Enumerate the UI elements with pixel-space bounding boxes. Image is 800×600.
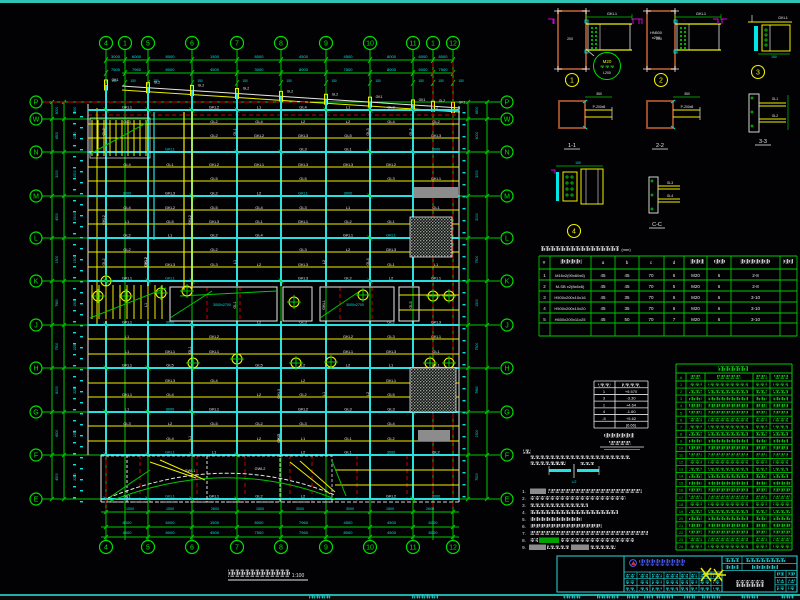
svg-text:GK1: GK1: [459, 101, 466, 105]
svg-text:W: W: [504, 117, 511, 124]
svg-text:GL1: GL1: [387, 219, 395, 224]
svg-text:L2: L2: [168, 421, 173, 426]
svg-text:GL1: GL1: [387, 262, 395, 267]
svg-text:2250: 2250: [73, 430, 77, 438]
svg-text:3000: 3000: [346, 507, 354, 511]
svg-text:6: 6: [190, 545, 194, 552]
svg-text:6000: 6000: [429, 520, 439, 525]
svg-text:4500: 4500: [344, 520, 354, 525]
svg-text:GL4: GL4: [387, 119, 395, 124]
svg-text:L200: L200: [603, 71, 611, 75]
svg-text:GL2: GL2: [332, 92, 339, 96]
svg-text:3000: 3000: [255, 67, 265, 72]
svg-text:GL2: GL2: [287, 89, 294, 93]
svg-text:GL1: GL1: [432, 205, 440, 210]
svg-text:GKL2: GKL2: [144, 257, 148, 267]
svg-text:GL1: GL1: [233, 301, 237, 308]
svg-text:GL2: GL2: [772, 114, 779, 118]
svg-text:4500: 4500: [210, 67, 220, 72]
svg-text:8000: 8000: [344, 530, 354, 535]
svg-text:18: 18: [679, 503, 683, 507]
svg-text:8000: 8000: [387, 54, 397, 59]
svg-text:20: 20: [679, 517, 683, 521]
svg-text:GK1: GK1: [376, 95, 383, 99]
svg-text:P-200x8: P-200x8: [593, 105, 606, 109]
svg-text:1: 1: [123, 41, 127, 48]
svg-text:2-8: 2-8: [752, 284, 759, 289]
svg-text:L2: L2: [346, 247, 351, 252]
svg-text:GL4: GL4: [255, 205, 263, 210]
svg-text:7500: 7500: [475, 343, 479, 351]
svg-text:GL3: GL3: [387, 105, 395, 110]
svg-text:M20: M20: [691, 295, 700, 300]
svg-text:7960: 7960: [475, 386, 479, 394]
svg-text:4500: 4500: [55, 213, 59, 221]
svg-text:3000: 3000: [432, 148, 440, 152]
svg-text:4500: 4500: [387, 520, 397, 525]
svg-text:150: 150: [575, 161, 581, 165]
svg-text:(mm): (mm): [621, 247, 631, 252]
svg-text:7: 7: [235, 41, 239, 48]
svg-text:+4.64: +4.64: [626, 402, 637, 407]
svg-text:GKL3: GKL3: [165, 191, 176, 196]
svg-text:GL4: GL4: [166, 436, 174, 441]
svg-text:150: 150: [130, 79, 136, 83]
svg-text:8: 8: [279, 545, 283, 552]
svg-text:GKL1: GKL1: [165, 495, 175, 499]
svg-text:GL2: GL2: [123, 247, 131, 252]
svg-text:GL3: GL3: [210, 262, 218, 267]
svg-text:GL4: GL4: [387, 421, 395, 426]
svg-text:L2: L2: [346, 363, 351, 368]
svg-text:L/2: L/2: [572, 480, 577, 484]
svg-text:4: 4: [104, 545, 108, 552]
svg-text:P: P: [34, 100, 39, 107]
svg-text:16: 16: [679, 489, 683, 493]
svg-text:22: 22: [679, 531, 683, 535]
svg-text:-1.60: -1.60: [626, 409, 636, 414]
svg-text:6000: 6000: [132, 54, 142, 59]
svg-text:5: 5: [680, 411, 682, 415]
svg-text:1500: 1500: [73, 213, 77, 221]
svg-text:GL4: GL4: [255, 233, 263, 238]
svg-text:4500: 4500: [344, 54, 354, 59]
svg-text:GL2: GL2: [154, 81, 161, 85]
svg-text:GL2: GL2: [243, 86, 250, 90]
svg-text:GL2: GL2: [277, 434, 281, 441]
svg-text:J: J: [34, 323, 38, 330]
svg-text:4500: 4500: [123, 530, 133, 535]
svg-text:L1: L1: [125, 349, 130, 354]
svg-text:M20: M20: [603, 59, 612, 64]
svg-text:9: 9: [680, 439, 682, 443]
svg-text:GL3: GL3: [387, 176, 395, 181]
svg-text:200: 200: [567, 37, 573, 41]
svg-text:GKL1: GKL1: [122, 320, 133, 325]
svg-text:M16x2(90x60x6): M16x2(90x60x6): [555, 273, 585, 278]
svg-text:GKL1: GKL1: [386, 234, 396, 238]
svg-text:GL3: GL3: [387, 407, 395, 412]
svg-text:E: E: [34, 497, 39, 504]
svg-text:J: J: [505, 323, 509, 330]
svg-text:L: L: [505, 236, 509, 243]
svg-text:4500: 4500: [55, 430, 59, 438]
svg-text:GL2: GL2: [210, 191, 218, 196]
svg-text:L2: L2: [389, 276, 394, 281]
svg-text:GKL2: GKL2: [386, 494, 397, 499]
svg-text:L1: L1: [125, 219, 130, 224]
svg-text:45: 45: [600, 306, 606, 311]
svg-text:19: 19: [679, 510, 683, 514]
svg-text:7960: 7960: [299, 520, 309, 525]
svg-text:GL2: GL2: [210, 119, 218, 124]
svg-text:70: 70: [648, 317, 654, 322]
svg-text:GKL2: GKL2: [386, 162, 397, 167]
svg-text:GL1: GL1: [432, 349, 440, 354]
svg-text:H500x200x10x16: H500x200x10x16: [554, 295, 586, 300]
svg-text:2-8: 2-8: [752, 273, 759, 278]
svg-text:GL3: GL3: [299, 247, 307, 252]
svg-text:150: 150: [331, 79, 337, 83]
svg-text:21: 21: [679, 524, 683, 528]
svg-text:GKL1: GKL1: [298, 219, 309, 224]
svg-text:7960: 7960: [299, 530, 309, 535]
svg-text:6000: 6000: [419, 54, 429, 59]
svg-text:GL2: GL2: [344, 276, 352, 281]
svg-text:9: 9: [324, 545, 328, 552]
svg-text:GKL1: GKL1: [343, 349, 354, 354]
svg-text:350: 350: [596, 92, 602, 96]
svg-text:1-1: 1-1: [568, 143, 576, 149]
svg-text:GL5: GL5: [210, 205, 218, 210]
svg-text:GKL1: GKL1: [122, 392, 133, 397]
svg-text:GL5: GL5: [387, 392, 395, 397]
svg-text:GL2: GL2: [210, 233, 218, 238]
svg-text:6000: 6000: [475, 132, 479, 140]
svg-text:GL2: GL2: [123, 233, 131, 238]
svg-text:L1: L1: [346, 205, 351, 210]
svg-text:1: 1: [680, 383, 682, 387]
svg-text:4: 4: [572, 229, 576, 236]
svg-text:C-C: C-C: [652, 222, 662, 228]
svg-text:15: 15: [679, 482, 683, 486]
svg-text:5: 5: [146, 545, 150, 552]
svg-text:3000: 3000: [432, 495, 440, 499]
svg-text:8: 8: [279, 41, 283, 48]
svg-text:7500: 7500: [344, 67, 354, 72]
svg-text:GKL3: GKL3: [209, 219, 220, 224]
svg-text:GKL1: GKL1: [122, 276, 133, 281]
svg-text:GKL1: GKL1: [165, 451, 175, 455]
svg-text:2.: 2.: [522, 496, 526, 501]
svg-text:35: 35: [624, 306, 630, 311]
svg-text:N: N: [504, 150, 509, 157]
svg-text:45: 45: [600, 295, 606, 300]
svg-text:3000: 3000: [475, 170, 479, 178]
svg-text:70: 70: [648, 295, 654, 300]
svg-text:11: 11: [679, 454, 683, 458]
svg-text:GL4: GL4: [166, 392, 174, 397]
svg-text:GKL1: GKL1: [607, 11, 618, 16]
svg-text:GL1: GL1: [344, 436, 352, 441]
svg-text:1:100: 1:100: [292, 573, 305, 579]
svg-text:GKL1: GKL1: [431, 334, 442, 339]
svg-text:4: 4: [104, 41, 108, 48]
svg-text:GL1: GL1: [255, 219, 263, 224]
svg-text:M20: M20: [691, 284, 700, 289]
svg-text:GKL1: GKL1: [386, 378, 397, 383]
svg-text:L1: L1: [144, 303, 148, 307]
svg-text:GL4: GL4: [255, 119, 263, 124]
svg-text:12: 12: [449, 41, 457, 48]
svg-text:L2: L2: [301, 450, 306, 455]
svg-text:7500: 7500: [111, 67, 121, 72]
svg-text:M: M: [33, 194, 39, 201]
svg-text:1500: 1500: [210, 54, 220, 59]
svg-text:P-200x8: P-200x8: [681, 105, 694, 109]
svg-text:GL5: GL5: [344, 133, 352, 138]
svg-text:GL2: GL2: [439, 99, 446, 103]
svg-text:L: L: [34, 236, 38, 243]
svg-text:23: 23: [679, 538, 683, 542]
svg-text:GL3: GL3: [299, 320, 307, 325]
svg-text:5: 5: [146, 41, 150, 48]
svg-text:GL4: GL4: [123, 162, 131, 167]
svg-text:GKL1: GKL1: [165, 277, 175, 281]
svg-text:45: 45: [624, 284, 630, 289]
svg-text:GKL3: GKL3: [298, 262, 309, 267]
svg-text:GL5: GL5: [166, 219, 174, 224]
svg-text:GKL3: GKL3: [386, 247, 397, 252]
svg-text:GL5: GL5: [166, 363, 174, 368]
svg-text:GK1: GK1: [112, 78, 119, 82]
svg-text:L1: L1: [301, 436, 306, 441]
svg-text:GL2: GL2: [255, 494, 263, 499]
svg-text:GL3: GL3: [123, 119, 131, 124]
svg-text:GL2: GL2: [432, 119, 440, 124]
svg-text:45: 45: [600, 273, 606, 278]
svg-text:8000: 8000: [166, 530, 176, 535]
svg-text:7.: 7.: [522, 531, 526, 536]
svg-text:L1: L1: [212, 450, 217, 455]
svg-text:L1: L1: [322, 392, 326, 396]
svg-text:GL4: GL4: [123, 205, 131, 210]
svg-text:1500: 1500: [475, 299, 479, 307]
svg-text:HN500: HN500: [650, 31, 662, 35]
svg-text:4500: 4500: [210, 530, 220, 535]
svg-text:7500: 7500: [475, 473, 479, 481]
svg-text:GKL3: GKL3: [386, 349, 397, 354]
svg-text:12: 12: [449, 545, 457, 552]
svg-text:GL3: GL3: [366, 128, 370, 135]
svg-text:GL1: GL1: [233, 128, 237, 135]
svg-text:2-2: 2-2: [656, 143, 664, 149]
svg-text:150: 150: [375, 79, 381, 83]
svg-text:8000: 8000: [299, 67, 309, 72]
svg-text:6000: 6000: [166, 520, 176, 525]
svg-text:3.: 3.: [522, 503, 526, 508]
svg-text:5.: 5.: [522, 517, 526, 522]
svg-text:150: 150: [458, 79, 464, 83]
svg-text:2250: 2250: [73, 132, 77, 140]
svg-text:150: 150: [197, 79, 203, 83]
svg-text:1500: 1500: [126, 507, 134, 511]
svg-text:GWL2: GWL2: [255, 467, 266, 471]
svg-text:6: 6: [190, 41, 194, 48]
svg-text:L2: L2: [257, 436, 262, 441]
svg-text:4.: 4.: [522, 510, 526, 515]
svg-text:GL1: GL1: [166, 162, 174, 167]
svg-text:1500: 1500: [55, 256, 59, 264]
svg-text:L2: L2: [257, 191, 262, 196]
svg-text:7: 7: [235, 545, 239, 552]
svg-text:L2: L2: [257, 392, 262, 397]
svg-text:3000x2700: 3000x2700: [346, 303, 364, 307]
svg-text:11: 11: [409, 41, 416, 48]
svg-text:24: 24: [679, 545, 683, 549]
svg-text:L2: L2: [301, 494, 306, 499]
svg-text:7500: 7500: [439, 67, 449, 72]
svg-text:3000: 3000: [387, 451, 395, 455]
svg-text:L1: L1: [168, 233, 173, 238]
svg-text:4500: 4500: [387, 530, 397, 535]
svg-text:GL5: GL5: [299, 176, 307, 181]
svg-text:8000: 8000: [255, 520, 265, 525]
svg-text:GL3: GL3: [299, 147, 307, 152]
svg-text:150: 150: [771, 55, 777, 59]
svg-text:GL2: GL2: [387, 436, 395, 441]
svg-text:GKL1: GKL1: [122, 105, 133, 110]
svg-text:GL1: GL1: [344, 147, 352, 152]
svg-text:L2: L2: [366, 392, 370, 396]
svg-text:GL2: GL2: [102, 258, 106, 265]
svg-text:150: 150: [418, 79, 424, 83]
svg-text:M: M: [504, 194, 510, 201]
svg-text:M20: M20: [691, 317, 700, 322]
svg-text:E: E: [505, 497, 510, 504]
svg-text:3000: 3000: [475, 213, 479, 221]
svg-text:GL3: GL3: [344, 407, 352, 412]
svg-text:GKL2: GKL2: [209, 334, 220, 339]
svg-text:1500: 1500: [475, 430, 479, 438]
svg-text:L1: L1: [346, 105, 351, 110]
svg-text:L2: L2: [257, 262, 262, 267]
svg-text:GKL1: GKL1: [122, 363, 133, 368]
svg-text:GL3: GL3: [387, 334, 395, 339]
svg-text:L2: L2: [322, 260, 326, 264]
svg-text:GL1: GL1: [188, 346, 192, 353]
svg-text:L1: L1: [389, 363, 394, 368]
svg-text:150: 150: [286, 79, 292, 83]
svg-text:1500: 1500: [73, 256, 77, 264]
svg-text:45: 45: [600, 284, 606, 289]
svg-text:4500: 4500: [55, 473, 59, 481]
svg-text:1500: 1500: [256, 507, 264, 511]
svg-text:GL5: GL5: [255, 363, 263, 368]
svg-text:GKL3: GKL3: [431, 320, 442, 325]
svg-text:GL3: GL3: [299, 421, 307, 426]
svg-text:L2: L2: [301, 378, 306, 383]
svg-text:GKL1: GKL1: [431, 176, 442, 181]
svg-text:M20: M20: [691, 273, 700, 278]
svg-text:GKL2: GKL2: [254, 133, 265, 138]
svg-text:14: 14: [679, 475, 683, 479]
svg-text:H: H: [504, 366, 509, 373]
svg-text:10: 10: [366, 545, 374, 552]
svg-text:3-10: 3-10: [751, 295, 761, 300]
svg-text:1500: 1500: [73, 170, 77, 178]
svg-text:8000: 8000: [255, 54, 265, 59]
svg-text:1: 1: [431, 41, 435, 48]
svg-text:H600x200x11x25: H600x200x11x25: [555, 317, 587, 322]
svg-text:K: K: [34, 279, 39, 286]
svg-text:GKL3: GKL3: [165, 378, 176, 383]
svg-text:GL5: GL5: [210, 421, 218, 426]
svg-text:+5.62: +5.62: [626, 416, 637, 421]
svg-text:M-SB x2(8x6x6): M-SB x2(8x6x6): [556, 284, 585, 289]
svg-text:GWL1: GWL1: [185, 469, 196, 473]
svg-text:3000: 3000: [344, 192, 352, 196]
svg-text:L1: L1: [434, 262, 439, 267]
svg-text:GKL1: GKL1: [322, 300, 326, 310]
svg-text:GKL3: GKL3: [343, 162, 354, 167]
svg-text:M20: M20: [691, 306, 700, 311]
svg-text:70: 70: [648, 284, 654, 289]
svg-text:9: 9: [324, 41, 328, 48]
svg-text:35: 35: [624, 295, 630, 300]
svg-text:W: W: [33, 117, 40, 124]
svg-text:GKL3: GKL3: [431, 133, 442, 138]
svg-text:50: 50: [624, 317, 630, 322]
svg-text:F: F: [505, 453, 509, 460]
svg-text:11: 11: [409, 545, 416, 552]
svg-text:GKL1: GKL1: [343, 233, 354, 238]
svg-text:(6.66): (6.66): [626, 422, 637, 427]
svg-text:150: 150: [438, 79, 444, 83]
svg-text:L2: L2: [434, 105, 439, 110]
svg-text:350: 350: [684, 92, 690, 96]
svg-text:10: 10: [679, 446, 683, 450]
svg-text:GL1: GL1: [344, 450, 352, 455]
svg-text:GKL1: GKL1: [254, 162, 265, 167]
svg-text:GKL3: GKL3: [165, 262, 176, 267]
svg-text:2250: 2250: [73, 473, 77, 481]
svg-text:GKL2: GKL2: [102, 215, 106, 225]
svg-text:1500: 1500: [210, 520, 220, 525]
svg-text:6000: 6000: [419, 67, 429, 72]
svg-text:2: 2: [680, 390, 682, 394]
svg-text:GL2: GL2: [409, 128, 413, 135]
svg-text:45: 45: [600, 317, 606, 322]
svg-text:GKL1: GKL1: [209, 494, 220, 499]
svg-text:8000: 8000: [387, 67, 397, 72]
svg-text:6: 6: [680, 418, 682, 422]
svg-text:GL2: GL2: [210, 247, 218, 252]
svg-text:L2: L2: [346, 119, 351, 124]
svg-text:L1: L1: [188, 436, 192, 440]
svg-text:GKL2: GKL2: [209, 162, 220, 167]
svg-text:GL2: GL2: [344, 219, 352, 224]
svg-text:G: G: [33, 410, 38, 417]
svg-text:L1: L1: [125, 334, 130, 339]
svg-text:6.: 6.: [522, 524, 526, 529]
svg-text:150: 150: [242, 79, 248, 83]
svg-text:GK1: GK1: [419, 98, 426, 102]
svg-text:8.: 8.: [522, 538, 526, 543]
svg-text:13: 13: [679, 468, 683, 472]
svg-text:GKL1: GKL1: [696, 11, 707, 16]
svg-text:GKL3: GKL3: [298, 133, 309, 138]
